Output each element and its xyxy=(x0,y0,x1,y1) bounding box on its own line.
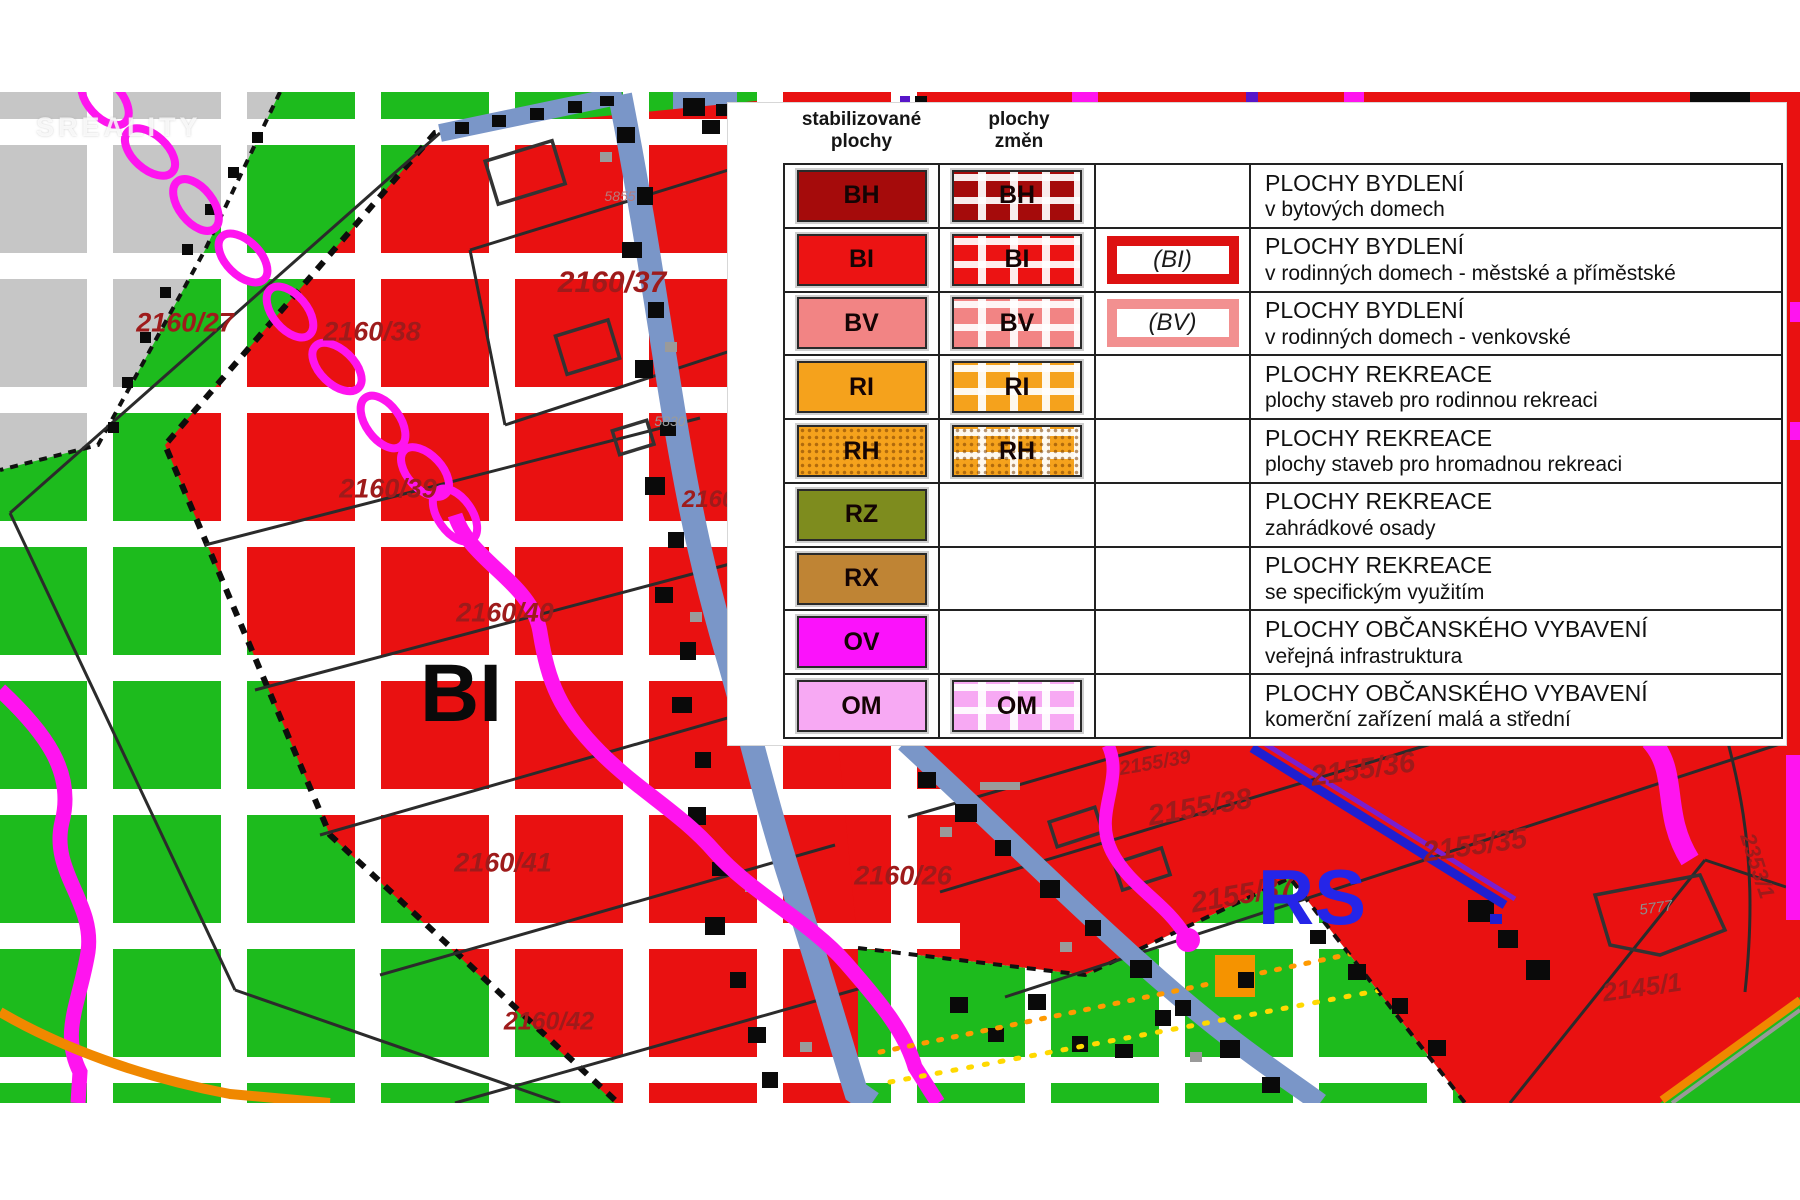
legend-cell-description: PLOCHY BYDLENÍv rodinných domech - venko… xyxy=(1251,293,1781,355)
map-label-2160-40: 2160/40 xyxy=(456,600,554,627)
legend-cell-description: PLOCHY OBČANSKÉHO VYBAVENÍveřejná infras… xyxy=(1251,611,1781,673)
legend-code-label: RH xyxy=(843,437,879,466)
legend-swatch-OM-stable: OM xyxy=(797,680,927,732)
legend-cell-stable: OM xyxy=(785,675,940,737)
legend-desc-subtitle: plochy staveb pro rodinnou rekreaci xyxy=(1265,388,1598,413)
watermark: SREALITY xyxy=(36,112,202,143)
legend-code-label: RX xyxy=(844,564,879,593)
map-label-2160-26: 2160/26 xyxy=(854,863,952,890)
legend-cell-outline xyxy=(1096,548,1251,610)
map-label-2160-38: 2160/38 xyxy=(323,319,421,346)
legend-desc-subtitle: veřejná infrastruktura xyxy=(1265,644,1462,669)
legend-cell-changes: BH xyxy=(940,165,1096,227)
map-label-2160-39: 2160/39 xyxy=(339,476,437,503)
map-label-2160-27: 2160/27 xyxy=(136,310,234,337)
legend-cell-changes: BV xyxy=(940,293,1096,355)
legend-code-label: RH xyxy=(999,437,1035,466)
legend-row-OV: OVPLOCHY OBČANSKÉHO VYBAVENÍveřejná infr… xyxy=(785,611,1781,675)
legend-code-label: RI xyxy=(849,373,874,402)
legend-cell-changes xyxy=(940,548,1096,610)
map-label-RS: RS xyxy=(1258,858,1366,936)
legend-row-BV: BVBV(BV)PLOCHY BYDLENÍv rodinných domech… xyxy=(785,293,1781,357)
legend-desc-subtitle: komerční zařízení malá a střední xyxy=(1265,707,1571,732)
legend-cell-stable: BI xyxy=(785,229,940,291)
legend-cell-stable: RI xyxy=(785,356,940,418)
legend-outline-swatch: (BI) xyxy=(1107,236,1239,284)
legend-code-label: BI xyxy=(849,245,874,274)
legend-swatch-RI-changes: RI xyxy=(952,361,1082,413)
legend-swatch-BH-stable: BH xyxy=(797,170,927,222)
legend-desc-title: PLOCHY REKREACE xyxy=(1265,361,1492,389)
legend-cell-outline xyxy=(1096,611,1251,673)
legend-cell-changes: RH xyxy=(940,420,1096,482)
legend-desc-title: PLOCHY BYDLENÍ xyxy=(1265,297,1464,325)
legend-cell-outline xyxy=(1096,675,1251,737)
legend-swatch-RH-stable: RH xyxy=(797,425,927,477)
legend-cell-stable: RX xyxy=(785,548,940,610)
legend-row-RH: RHRHPLOCHY REKREACEplochy staveb pro hro… xyxy=(785,420,1781,484)
legend-code-label: BH xyxy=(843,181,879,210)
legend-cell-stable: BV xyxy=(785,293,940,355)
legend-cell-changes: BI xyxy=(940,229,1096,291)
legend-cell-outline xyxy=(1096,356,1251,418)
legend-row-RX: RXPLOCHY REKREACEse specifickým využitím xyxy=(785,548,1781,612)
legend-cell-outline xyxy=(1096,165,1251,227)
legend-code-label: OV xyxy=(843,628,879,657)
legend-cell-changes: OM xyxy=(940,675,1096,737)
legend-code-label: BV xyxy=(1000,309,1035,338)
map-label-BI: BI xyxy=(420,653,502,735)
legend-code-label: BI xyxy=(1005,245,1030,274)
legend-cell-description: PLOCHY BYDLENÍv rodinných domech - městs… xyxy=(1251,229,1781,291)
legend-cell-changes xyxy=(940,611,1096,673)
legend-cell-description: PLOCHY BYDLENÍv bytových domech xyxy=(1251,165,1781,227)
legend-code-label: RI xyxy=(1005,373,1030,402)
legend-cell-description: PLOCHY OBČANSKÉHO VYBAVENÍkomerční zaříz… xyxy=(1251,675,1781,737)
map-label-5855: 5855 xyxy=(604,189,635,203)
legend-swatch-BI-changes: BI xyxy=(952,234,1082,286)
legend-code-label: OM xyxy=(997,692,1037,721)
legend-desc-title: PLOCHY OBČANSKÉHO VYBAVENÍ xyxy=(1265,616,1648,644)
legend-cell-outline: (BV) xyxy=(1096,293,1251,355)
legend-code-label: RZ xyxy=(845,500,878,529)
legend-cell-changes xyxy=(940,484,1096,546)
map-label-2160-37: 2160/37 xyxy=(558,268,666,298)
legend-desc-subtitle: v rodinných domech - venkovské xyxy=(1265,325,1571,350)
zoning-map-screenshot: SREALITY 2160/272160/382160/372160/39216… xyxy=(0,0,1800,1200)
legend-swatch-RI-stable: RI xyxy=(797,361,927,413)
legend-code-label: OM xyxy=(841,692,881,721)
legend-desc-title: PLOCHY BYDLENÍ xyxy=(1265,233,1464,261)
map-label-5777: 5777 xyxy=(1638,898,1673,917)
legend-desc-subtitle: zahrádkové osady xyxy=(1265,516,1435,541)
legend-code-label: BH xyxy=(999,181,1035,210)
legend-row-RI: RIRIPLOCHY REKREACEplochy staveb pro rod… xyxy=(785,356,1781,420)
map-label-5830: 5830 xyxy=(654,414,685,428)
legend-cell-outline xyxy=(1096,484,1251,546)
legend-cell-outline: (BI) xyxy=(1096,229,1251,291)
legend-desc-title: PLOCHY OBČANSKÉHO VYBAVENÍ xyxy=(1265,680,1648,708)
legend-outline-swatch: (BV) xyxy=(1107,299,1239,347)
legend-swatch-BH-changes: BH xyxy=(952,170,1082,222)
legend-swatch-RX-stable: RX xyxy=(797,553,927,605)
legend-header-changes: plochy změn xyxy=(940,109,1098,153)
legend-swatch-RH-changes: RH xyxy=(952,425,1082,477)
legend-swatch-OM-changes: OM xyxy=(952,680,1082,732)
legend-cell-description: PLOCHY REKREACEse specifickým využitím xyxy=(1251,548,1781,610)
legend-cell-description: PLOCHY REKREACEzahrádkové osady xyxy=(1251,484,1781,546)
map-label-2160-41: 2160/41 xyxy=(454,850,552,877)
legend-desc-subtitle: v rodinných domech - městské a příměstsk… xyxy=(1265,261,1676,286)
legend-swatch-BV-changes: BV xyxy=(952,297,1082,349)
legend-desc-title: PLOCHY BYDLENÍ xyxy=(1265,170,1464,198)
legend-row-OM: OMOMPLOCHY OBČANSKÉHO VYBAVENÍkomerční z… xyxy=(785,675,1781,737)
legend-cell-stable: RZ xyxy=(785,484,940,546)
legend-desc-subtitle: se specifickým využitím xyxy=(1265,580,1484,605)
legend-desc-subtitle: v bytových domech xyxy=(1265,197,1445,222)
legend-panel: stabilizované plochy plochy změn BHBHPLO… xyxy=(728,103,1786,745)
legend-desc-title: PLOCHY REKREACE xyxy=(1265,552,1492,580)
legend-swatch-BI-stable: BI xyxy=(797,234,927,286)
legend-swatch-RZ-stable: RZ xyxy=(797,489,927,541)
legend-table: BHBHPLOCHY BYDLENÍv bytových domechBIBI(… xyxy=(783,163,1783,739)
legend-row-RZ: RZPLOCHY REKREACEzahrádkové osady xyxy=(785,484,1781,548)
legend-cell-changes: RI xyxy=(940,356,1096,418)
legend-cell-stable: RH xyxy=(785,420,940,482)
legend-code-label: BV xyxy=(844,309,879,338)
legend-row-BH: BHBHPLOCHY BYDLENÍv bytových domech xyxy=(785,165,1781,229)
legend-desc-title: PLOCHY REKREACE xyxy=(1265,488,1492,516)
legend-row-BI: BIBI(BI)PLOCHY BYDLENÍv rodinných domech… xyxy=(785,229,1781,293)
legend-cell-stable: OV xyxy=(785,611,940,673)
legend-cell-outline xyxy=(1096,420,1251,482)
legend-swatch-BV-stable: BV xyxy=(797,297,927,349)
legend-swatch-OV-stable: OV xyxy=(797,616,927,668)
map-label-2160-42: 2160/42 xyxy=(504,1010,594,1035)
legend-header-stabilized: stabilizované plochy xyxy=(783,109,940,153)
legend-cell-description: PLOCHY REKREACEplochy staveb pro rodinno… xyxy=(1251,356,1781,418)
legend-desc-title: PLOCHY REKREACE xyxy=(1265,425,1492,453)
legend-desc-subtitle: plochy staveb pro hromadnou rekreaci xyxy=(1265,452,1622,477)
legend-cell-description: PLOCHY REKREACEplochy staveb pro hromadn… xyxy=(1251,420,1781,482)
legend-cell-stable: BH xyxy=(785,165,940,227)
